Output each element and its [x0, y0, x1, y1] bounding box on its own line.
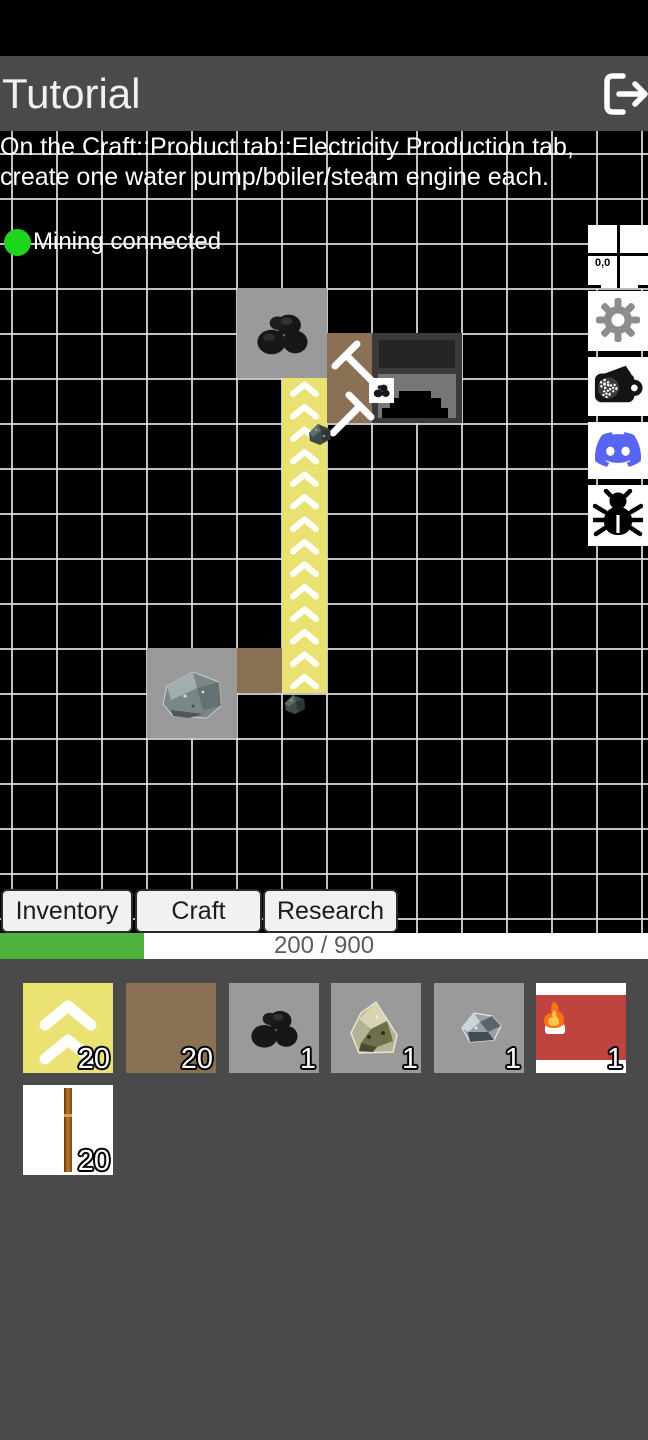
- inventory-slot-furnace-item[interactable]: 1: [536, 983, 626, 1073]
- ore-rock-sprite: [147, 648, 237, 738]
- tab-craft[interactable]: Craft: [135, 889, 262, 933]
- mod-wallet-button[interactable]: [588, 357, 648, 416]
- ore-chunk-icon: [306, 422, 333, 447]
- page-title: Tutorial: [0, 70, 598, 118]
- fire-icon: [538, 1000, 572, 1036]
- inventory-slot-copper-ore[interactable]: 1: [331, 983, 421, 1073]
- coal-sprite: [237, 288, 327, 378]
- tutorial-instruction-line1: On the Craft::Product tab::Electricity P…: [0, 132, 574, 162]
- progress-label: 200 / 900: [0, 933, 648, 959]
- game-map[interactable]: On the Craft::Product tab::Electricity P…: [0, 131, 648, 933]
- miner-ore-tile[interactable]: [237, 648, 282, 693]
- furnace-top-panel: [379, 340, 455, 368]
- discord-button[interactable]: [588, 422, 648, 479]
- tutorial-instruction: On the Craft::Product tab::Electricity P…: [0, 132, 574, 192]
- game-screen: Tutorial On the Craft::Product tab::Elec…: [0, 0, 648, 1440]
- inventory-slot-stick[interactable]: 20: [23, 1085, 113, 1175]
- ore-chunk-icon: [281, 693, 308, 716]
- status-bar: [0, 0, 648, 56]
- discord-icon: [595, 432, 641, 470]
- inventory-slot-miner[interactable]: 20: [126, 983, 216, 1073]
- mining-status-label: Mining connected: [33, 228, 221, 256]
- wallet-gears-icon: [593, 362, 643, 411]
- storage-progress-bar: 200 / 900: [0, 933, 648, 959]
- item-count: 20: [78, 1043, 110, 1076]
- pickaxe-icon: [329, 391, 375, 437]
- status-dot-icon: [4, 229, 31, 256]
- header: Tutorial: [0, 56, 648, 131]
- inventory-slot-iron-ore[interactable]: 1: [434, 983, 524, 1073]
- pickaxe-icon: [331, 340, 377, 386]
- coal-deposit-tile[interactable]: [237, 288, 327, 378]
- item-count: 1: [300, 1043, 316, 1076]
- inventory-slot-coal[interactable]: 1: [229, 983, 319, 1073]
- inventory-slot-conveyor-belt[interactable]: 20: [23, 983, 113, 1073]
- exit-button[interactable]: [598, 70, 648, 118]
- item-count: 20: [181, 1043, 213, 1076]
- minimap-hline: [588, 253, 648, 256]
- minimap-button[interactable]: 0,0: [588, 225, 648, 288]
- inventory-panel: 20 20 1: [0, 959, 648, 1440]
- settings-button[interactable]: [588, 291, 648, 351]
- item-count: 20: [78, 1145, 110, 1178]
- tab-research[interactable]: Research: [263, 889, 398, 933]
- minimap-tick: [588, 285, 601, 288]
- minimap-coords: 0,0: [595, 257, 610, 269]
- tab-inventory[interactable]: Inventory: [1, 889, 133, 933]
- stick-icon: [64, 1088, 72, 1172]
- minimap-tick: [638, 285, 648, 288]
- mining-status: Mining connected: [4, 228, 221, 256]
- tutorial-instruction-line2: create one water pump/boiler/steam engin…: [0, 162, 574, 192]
- gear-icon: [594, 296, 642, 347]
- item-count: 1: [402, 1043, 418, 1076]
- item-count: 1: [607, 1043, 623, 1076]
- item-count: 1: [505, 1043, 521, 1076]
- ore-deposit-tile[interactable]: [147, 648, 237, 738]
- logout-icon: [598, 106, 648, 121]
- minimap-vline: [617, 225, 620, 288]
- bug-icon: [593, 489, 643, 542]
- bug-report-button[interactable]: [588, 485, 648, 546]
